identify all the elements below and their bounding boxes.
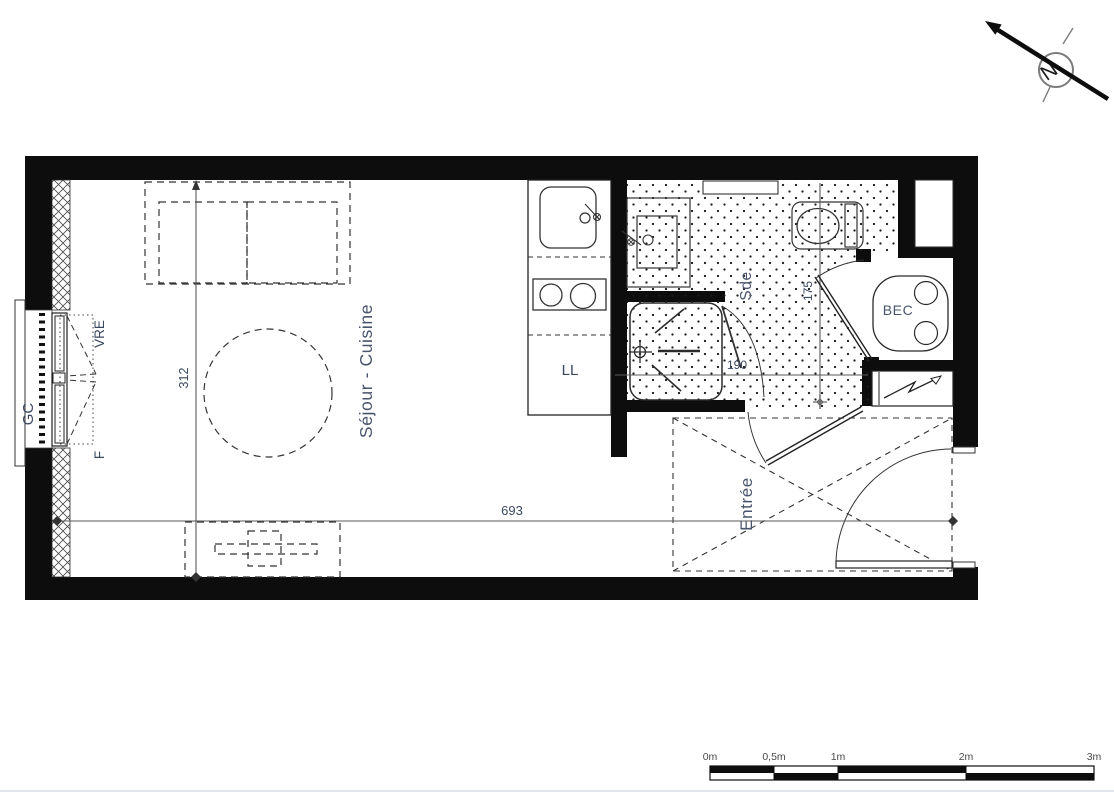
scale-label-0: 0m bbox=[703, 751, 718, 763]
window-label: F bbox=[92, 451, 107, 459]
scale-label-1: 1m bbox=[831, 751, 846, 763]
wall-niche-left bbox=[898, 180, 915, 252]
dim-label-190: 190 bbox=[727, 358, 747, 372]
wall-right-upper bbox=[953, 156, 978, 447]
scale-label-3: 3m bbox=[1087, 751, 1102, 763]
scale-label-05: 0,5m bbox=[762, 751, 786, 763]
dim-label-693: 693 bbox=[501, 503, 523, 518]
wall-niche bbox=[915, 180, 953, 247]
room-label-entrance: Entrée bbox=[737, 477, 756, 531]
scale-label-2: 2m bbox=[959, 751, 974, 763]
shutter-label: VRE bbox=[92, 320, 107, 348]
wall-shelf bbox=[703, 181, 778, 194]
electrical-panel bbox=[872, 371, 953, 406]
room-label-living: Séjour - Cuisine bbox=[356, 304, 376, 438]
water-heater-label: BEC bbox=[883, 302, 914, 318]
wall-niche-bottom bbox=[898, 247, 953, 258]
door-jamb-top bbox=[953, 447, 975, 453]
window-bay bbox=[25, 310, 52, 448]
window-mullion bbox=[53, 373, 65, 383]
wall-kitchen-bathroom bbox=[611, 180, 627, 457]
guard-rail bbox=[15, 300, 25, 466]
wall-left-upper bbox=[25, 156, 52, 310]
washing-machine-label: LL bbox=[562, 362, 579, 379]
floor-plan-canvas: GC VRE F Séjour - Cuisine 312 bbox=[0, 0, 1114, 800]
kitchen: LL bbox=[528, 180, 611, 415]
wall-under-bec bbox=[862, 360, 953, 372]
dim-label-312: 312 bbox=[177, 368, 191, 389]
guard-rail-label: GC bbox=[20, 403, 37, 426]
floor-plan-page: GC VRE F Séjour - Cuisine 312 bbox=[0, 0, 1114, 800]
door-jamb-bottom bbox=[953, 562, 975, 568]
dim-label-175: 175 bbox=[801, 281, 815, 301]
wall-bottom bbox=[25, 577, 978, 600]
wall-top bbox=[25, 156, 978, 180]
wall-below-shower bbox=[611, 400, 745, 412]
room-label-bathroom: Sde bbox=[738, 271, 755, 300]
